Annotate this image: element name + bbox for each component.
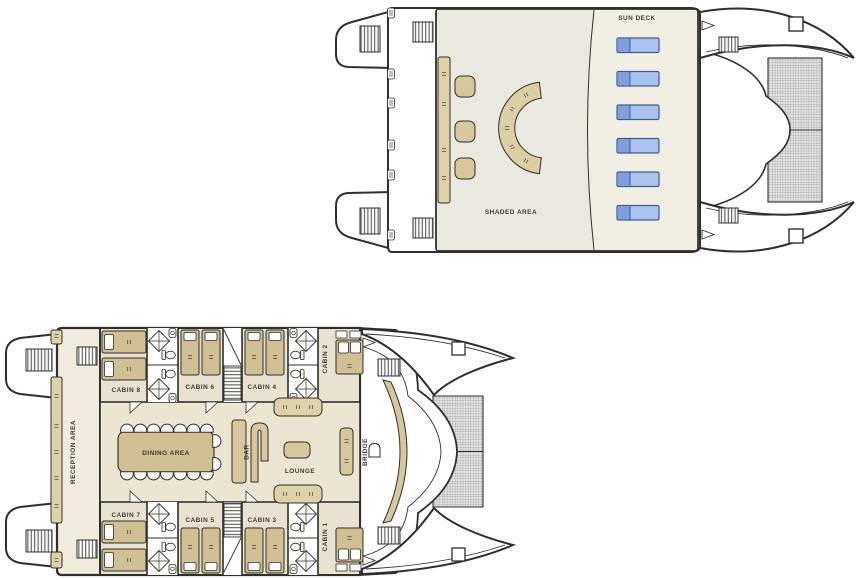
deck-stairs-icon [413, 22, 433, 42]
coffee-table [284, 442, 310, 458]
deck-stairs-icon [77, 540, 97, 558]
toilet-icon [162, 351, 175, 360]
sun-lounger [617, 105, 659, 120]
deck-hatch [452, 342, 465, 355]
catamaran-deck-plan: SUN DECK SHADED AREA BRIDGE RECEPTION AR… [0, 0, 857, 580]
main-deck-plan: BRIDGE RECEPTION AREA [6, 328, 513, 575]
dining-chair [161, 472, 174, 480]
deck-table [455, 158, 475, 179]
cleat-icon [388, 230, 395, 240]
helm-seat-icon [369, 444, 380, 458]
boarding-ladder-icon [26, 530, 52, 552]
boarding-ladder-icon [360, 208, 380, 234]
dining-area-label: DINING AREA [142, 450, 190, 457]
lounge-label: LOUNGE [285, 468, 316, 475]
nightstand [350, 331, 361, 338]
cabin-label: CABIN 5 [185, 517, 214, 524]
cleat-icon [388, 170, 395, 180]
cabin-label: CABIN 4 [247, 384, 276, 391]
toilet-icon [162, 370, 175, 379]
cabin-label: CABIN 7 [111, 512, 140, 519]
dining-chair [121, 472, 134, 480]
boarding-ladder-icon [360, 26, 380, 52]
dining-chair [213, 435, 221, 448]
bed [102, 521, 146, 543]
deck-bench [438, 57, 450, 203]
bed [202, 330, 220, 375]
cleat-icon [388, 8, 395, 18]
nightstand [336, 564, 347, 571]
bridge-label: BRIDGE [362, 438, 369, 466]
deck-stairs-icon [413, 218, 433, 238]
sink-icon [290, 565, 297, 574]
bed [181, 528, 199, 573]
deck-table [455, 121, 475, 142]
sink-icon [169, 329, 176, 338]
pillow [339, 342, 349, 353]
gangway-steps-icon [378, 359, 400, 376]
bed [245, 528, 263, 573]
bed [266, 528, 284, 573]
dining-area: DINING AREA [118, 424, 221, 480]
bed [181, 330, 199, 375]
bar-label: BAR [244, 444, 251, 459]
sun-lounger [617, 172, 659, 187]
toilet-icon [291, 370, 304, 379]
dining-chair [200, 472, 213, 480]
dining-chair [187, 424, 200, 432]
dining-chair [147, 424, 160, 432]
cabin-label: CABIN 6 [185, 384, 214, 391]
deck-plan-drawing: SUN DECK SHADED AREA BRIDGE RECEPTION AR… [0, 0, 857, 580]
pillow [339, 549, 349, 560]
toilet-icon [162, 543, 175, 552]
sofa [274, 398, 322, 416]
bed [202, 528, 220, 573]
dining-chair [134, 472, 147, 480]
reception-label: RECEPTION AREA [70, 420, 77, 484]
bench [340, 428, 353, 475]
toilet-icon [291, 543, 304, 552]
sink-icon [169, 565, 176, 574]
nightstand [350, 564, 361, 571]
cabin-label: CABIN 3 [247, 517, 276, 524]
sun-lounger [617, 139, 659, 154]
deck-table [455, 76, 475, 97]
bed [266, 330, 284, 375]
shaded-area-label: SHADED AREA [485, 209, 537, 216]
dining-chair [121, 424, 134, 432]
cabin-7: CABIN 7 [102, 512, 146, 571]
pillow [351, 342, 361, 353]
sun-lounger [617, 72, 659, 87]
bed [102, 358, 146, 380]
cabin-label: CABIN 8 [111, 387, 140, 394]
dining-chair [213, 458, 221, 471]
sink-icon [290, 329, 297, 338]
toilet-icon [162, 523, 175, 532]
deck-hatch [789, 17, 803, 31]
deck-hatch [789, 229, 803, 243]
bed [245, 330, 263, 375]
cabin-label: CABIN 2 [322, 344, 329, 373]
bridge-bench-group [340, 428, 353, 475]
deck-stairs-icon [77, 347, 97, 365]
gangway-steps-icon [719, 208, 738, 223]
dining-chair [134, 424, 147, 432]
gangway-steps-icon [378, 527, 400, 544]
sofa [274, 485, 322, 503]
boarding-ladder-icon [26, 349, 52, 371]
sun-lounger [617, 38, 659, 53]
dining-chair [161, 424, 174, 432]
dining-chair [174, 472, 187, 480]
bed [102, 549, 146, 571]
sink-icon [169, 394, 176, 403]
sun-deck-label: SUN DECK [618, 15, 655, 22]
sun-lounger [617, 206, 659, 221]
bench [51, 377, 62, 523]
bench [51, 552, 62, 568]
bed [102, 331, 146, 353]
cleat-icon [388, 98, 395, 108]
pillow [351, 549, 361, 560]
dining-chair [174, 424, 187, 432]
dining-chair [187, 472, 200, 480]
toilet-icon [291, 351, 304, 360]
dining-chair [200, 424, 213, 432]
cleat-icon [388, 69, 395, 79]
dining-chair [147, 472, 160, 480]
toilet-icon [291, 523, 304, 532]
gangway-steps-icon [719, 37, 738, 52]
cleat-icon [388, 140, 395, 150]
sun-deck-plan: SUN DECK SHADED AREA [336, 8, 854, 252]
nightstand [336, 331, 347, 338]
deck-hatch [452, 548, 465, 561]
cabin-label: CABIN 1 [322, 522, 329, 551]
